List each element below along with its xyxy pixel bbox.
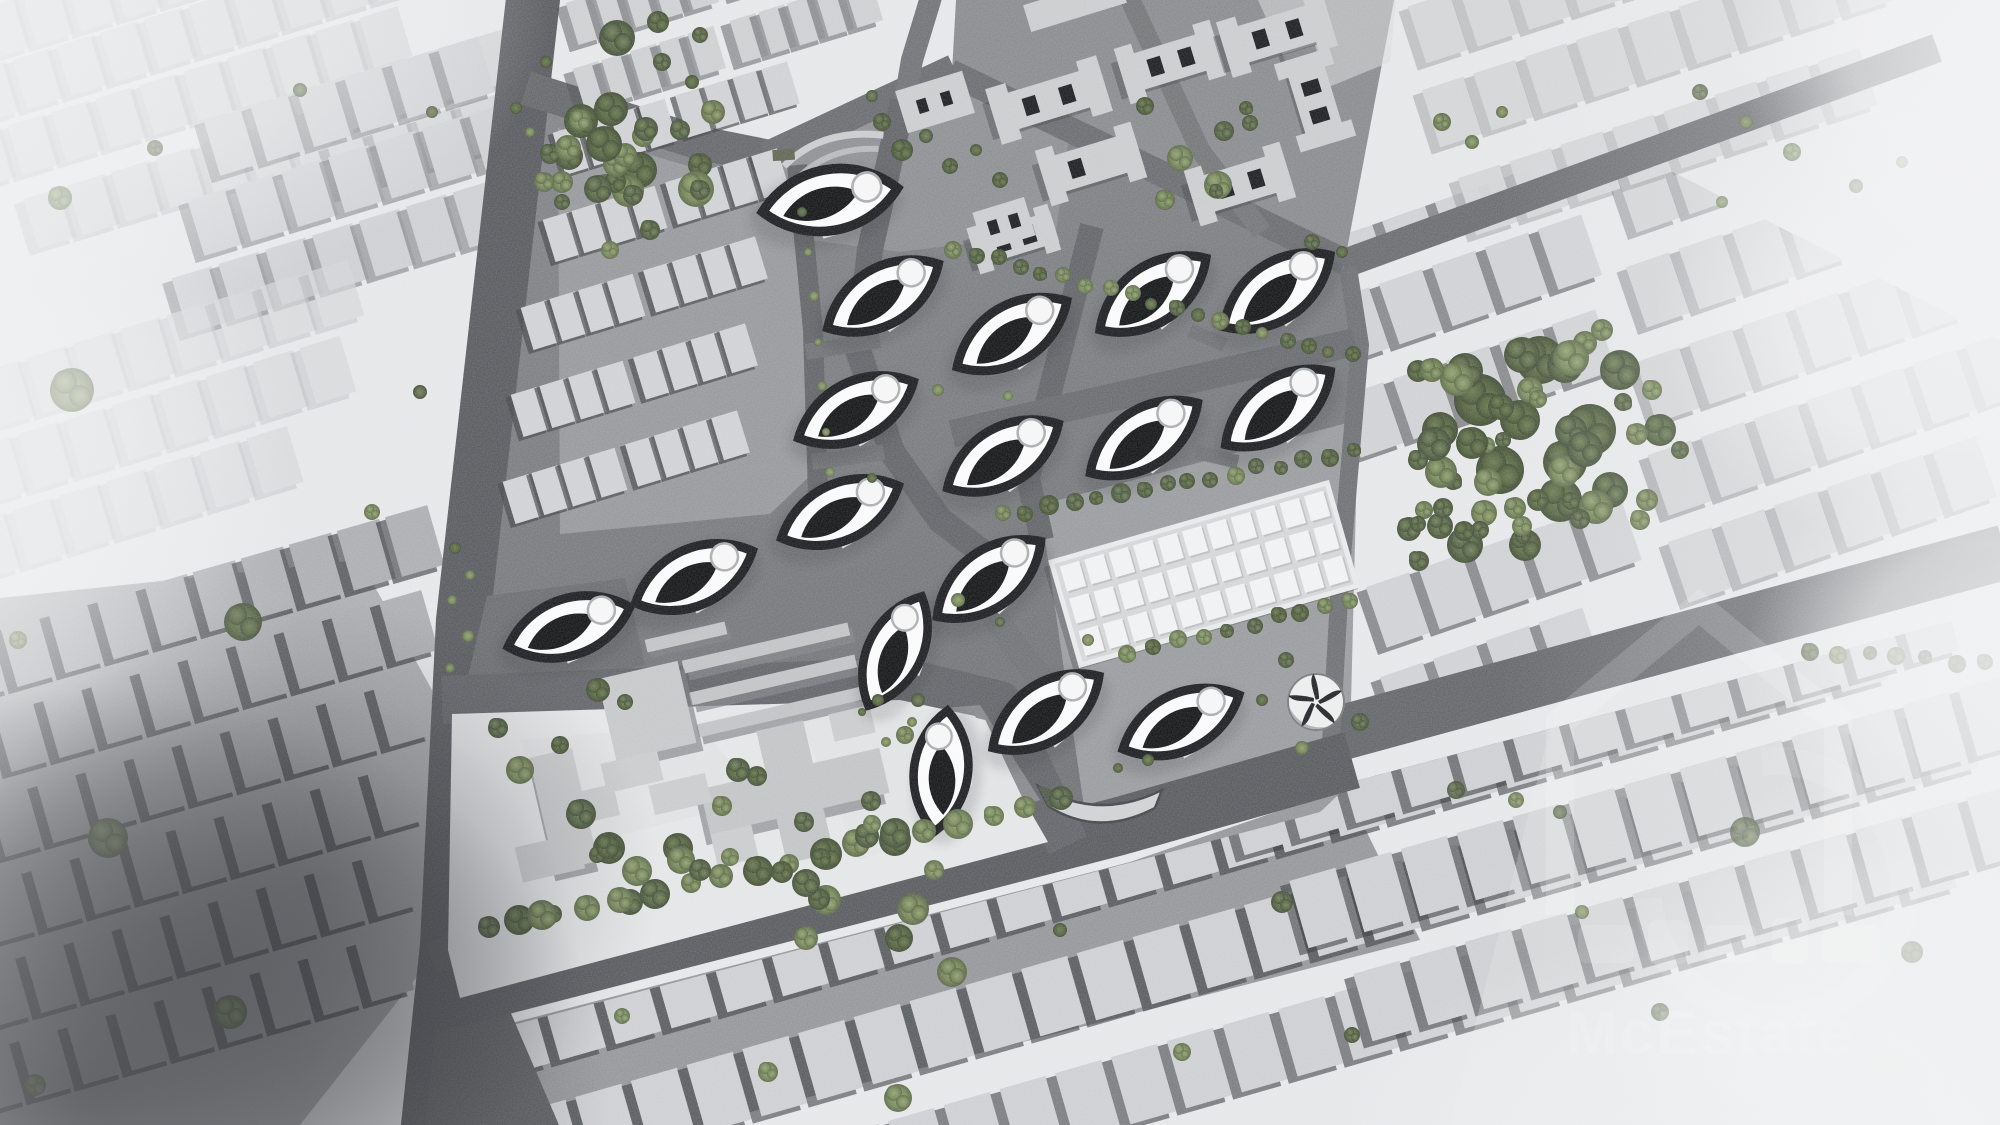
svg-text:McEstate: McEstate [1566, 999, 1854, 1068]
